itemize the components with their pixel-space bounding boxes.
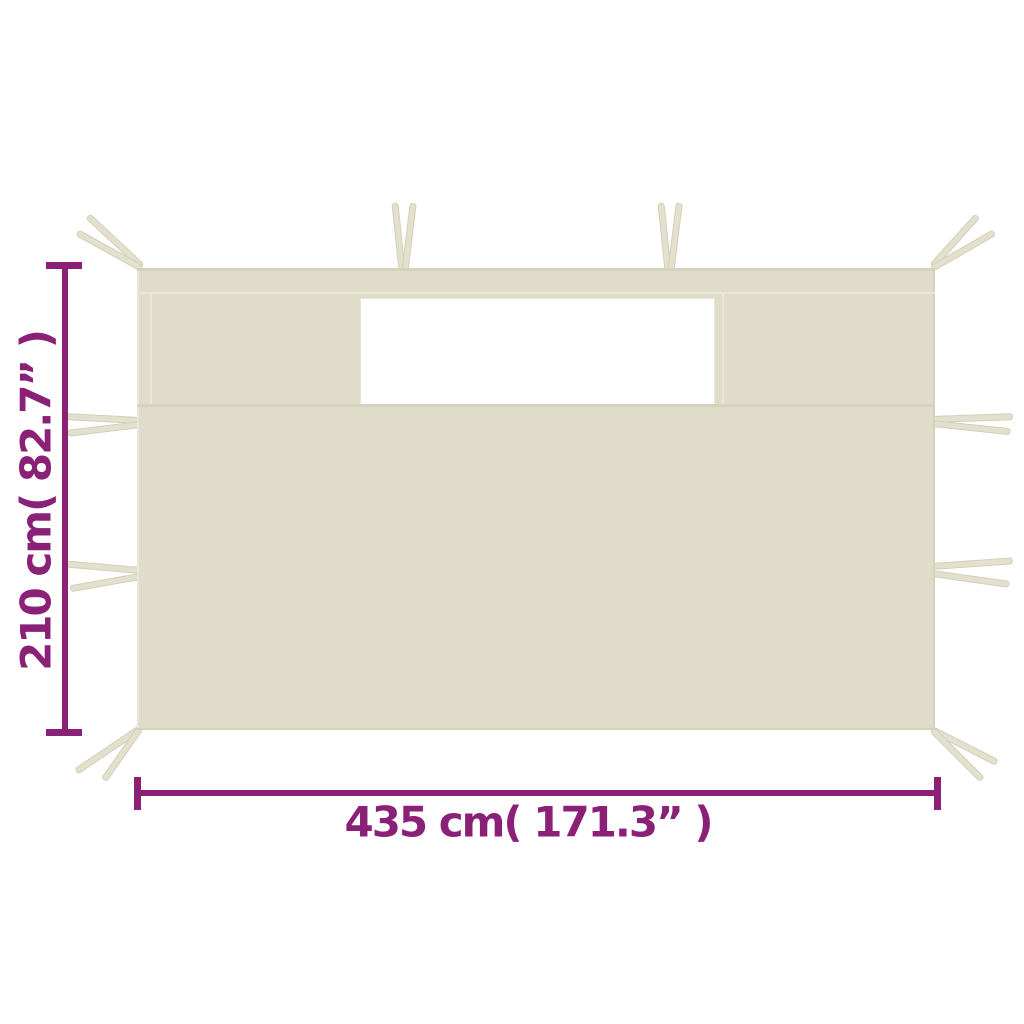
height-dimension-label: 210 cm( 82.7” ) [12, 331, 61, 671]
product-diagram: 210 cm( 82.7” ) 435 cm( 171.3” ) [0, 0, 1024, 1024]
tie-strap [932, 557, 1013, 570]
right-vertical-seam [722, 294, 724, 404]
width-dimension-cap-right [934, 777, 941, 810]
tie-strap [69, 573, 140, 592]
width-dimension-cap-left [134, 777, 141, 810]
left-vertical-seam [150, 294, 152, 404]
tie-strap [932, 570, 1010, 588]
height-dimension-cap-bottom [46, 729, 82, 736]
height-dimension-cap-top [46, 262, 82, 269]
tie-strap [932, 420, 1011, 435]
width-dimension-line [137, 790, 938, 796]
height-dimension-line [62, 265, 68, 733]
tie-strap [668, 203, 683, 271]
top-band-seam [137, 292, 935, 294]
tie-strap [64, 560, 140, 574]
sidewall-panel [137, 268, 935, 730]
window-row-bottom-seam [137, 404, 935, 407]
window-opening [360, 298, 715, 405]
tie-strap [67, 421, 140, 437]
width-dimension-label: 435 cm( 171.3” ) [344, 798, 711, 847]
tie-strap [402, 203, 417, 271]
